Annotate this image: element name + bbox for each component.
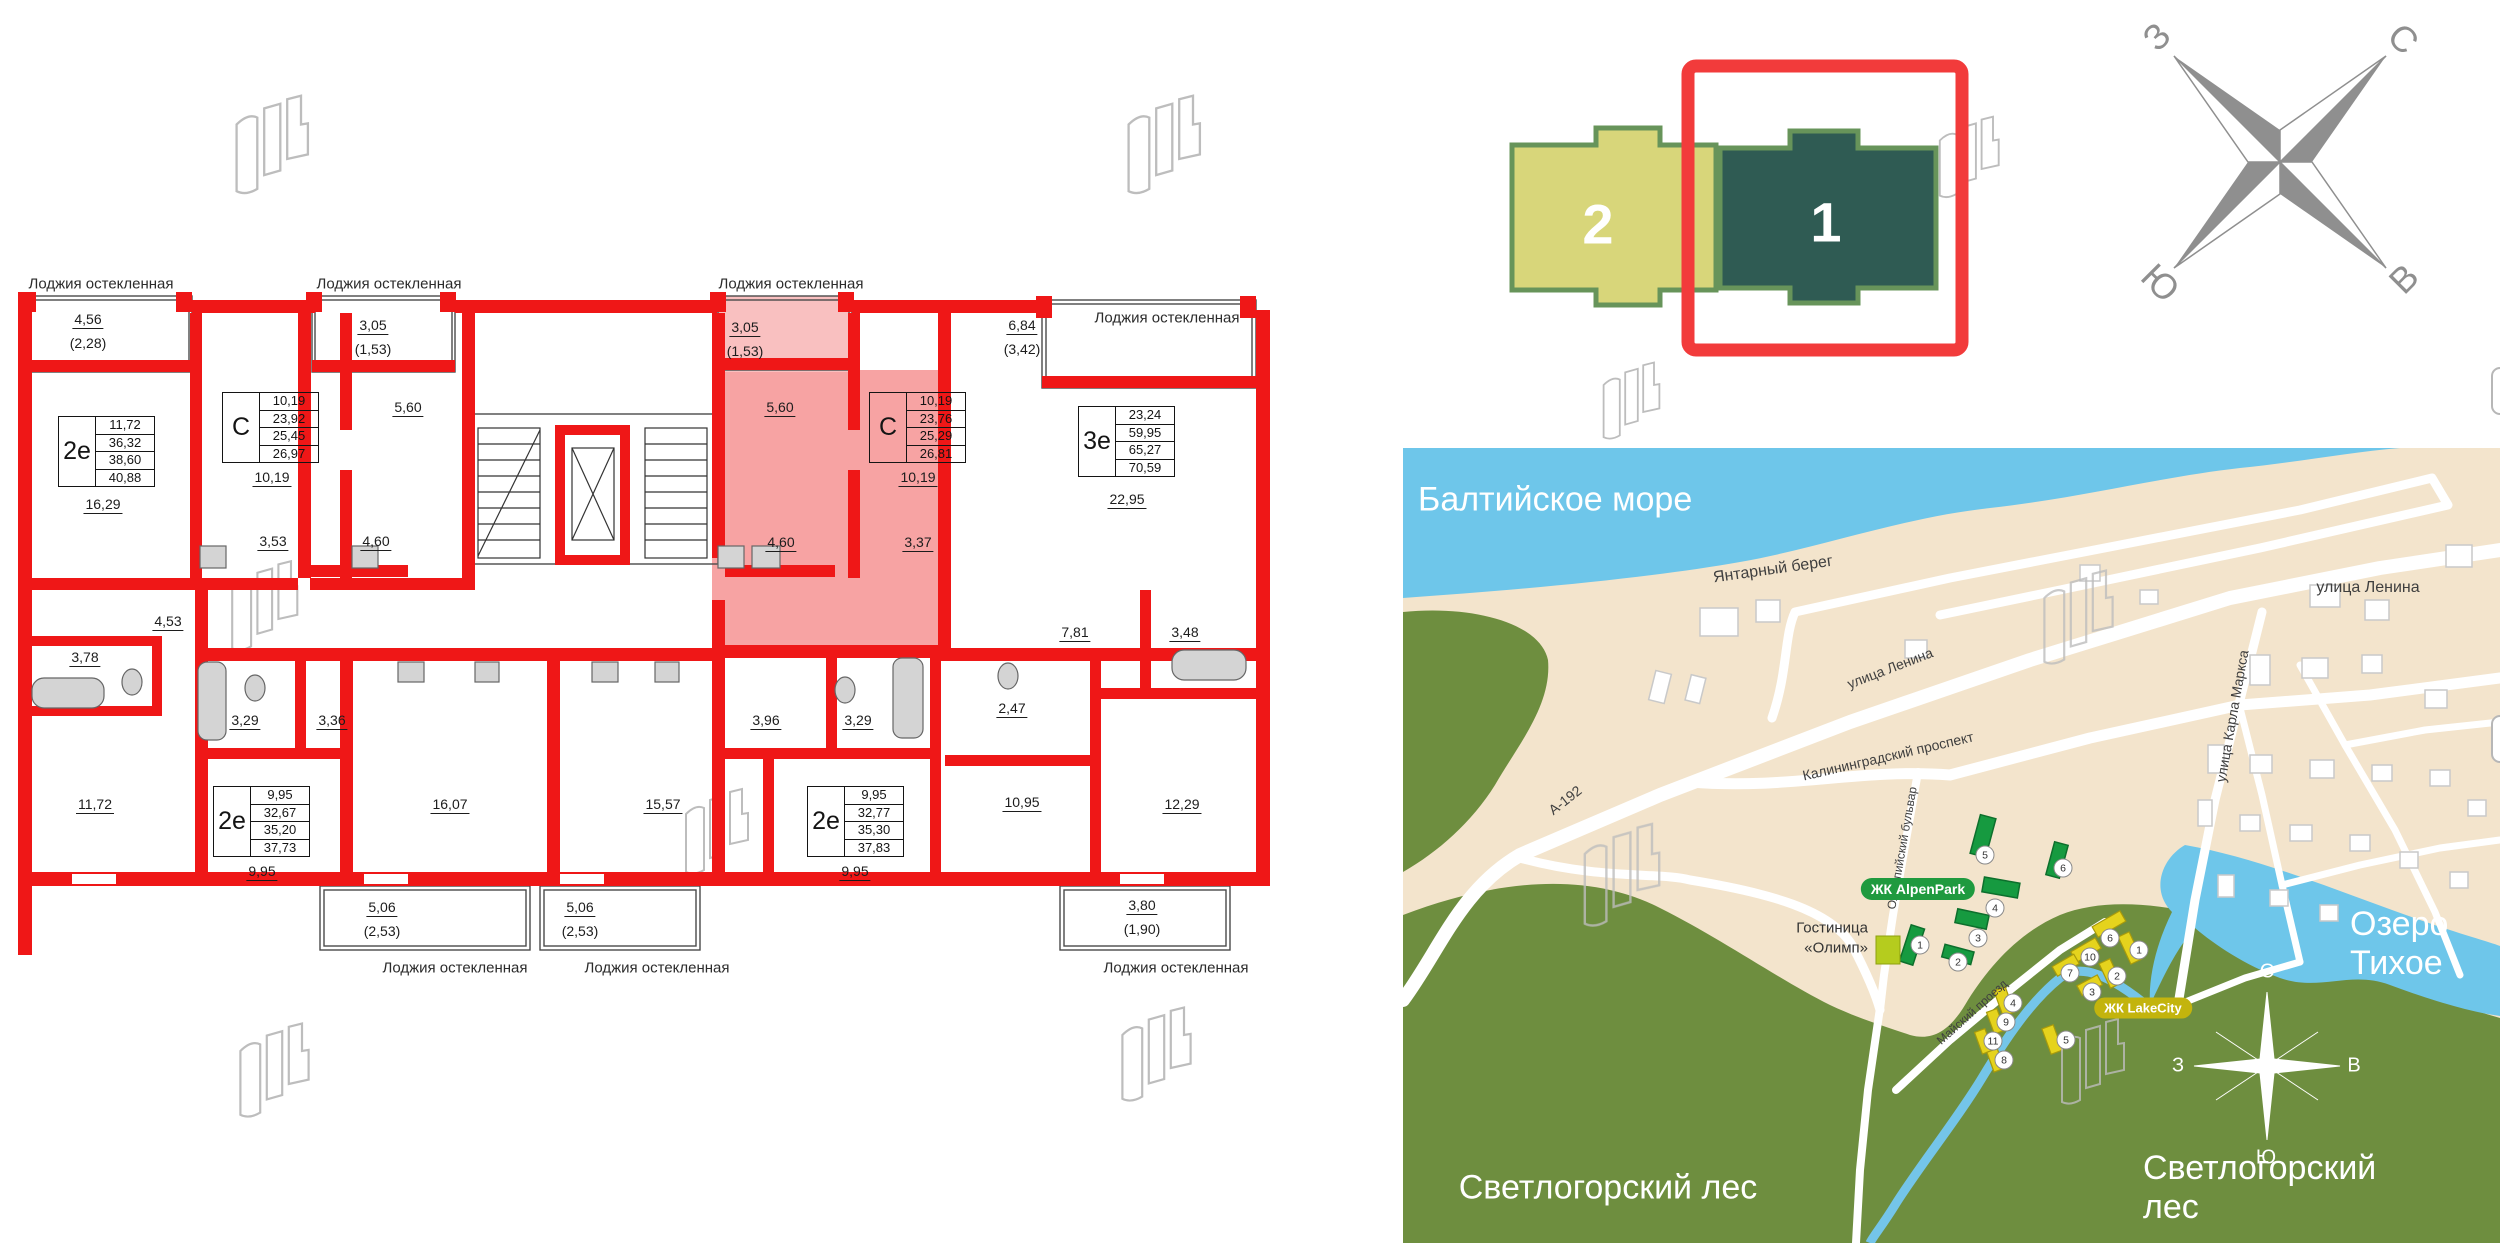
room-area: 5,60 xyxy=(764,399,795,417)
building-number-badge: 9 xyxy=(1997,1013,2016,1032)
room-area: 11,72 xyxy=(76,796,114,814)
loggia-label: Лоджия остекленная xyxy=(1094,310,1239,327)
alpenpark-badge[interactable]: ЖК AlpenPark xyxy=(1861,878,1975,900)
street-lenina-right: улица Ленина xyxy=(2316,579,2419,597)
room-area: 3,37 xyxy=(902,534,933,552)
room-area: 4,60 xyxy=(360,533,391,551)
apartment-type: 2е xyxy=(808,787,845,856)
room-area: 7,81 xyxy=(1059,624,1090,642)
hotel-label-line1: Гостиница xyxy=(1796,919,1868,938)
hotel-label-line2: «Олимп» xyxy=(1804,939,1868,958)
forest-label-left: Светлогорский лес xyxy=(1459,1169,1758,1208)
room-area: 3,29 xyxy=(229,712,260,730)
lakecity-badge[interactable]: ЖК LakeCity xyxy=(2094,998,2192,1019)
room-area: 5,06 xyxy=(564,899,595,917)
building-number-badge: 8 xyxy=(1995,1051,2014,1070)
room-area: 16,07 xyxy=(430,796,469,814)
room-area: 3,48 xyxy=(1169,624,1200,642)
apartment-type: С xyxy=(223,393,260,462)
room-area: 3,53 xyxy=(257,533,288,551)
room-area: 3,96 xyxy=(750,712,781,730)
section-selector xyxy=(1512,66,1962,350)
building-number-badge: 4 xyxy=(1986,899,2005,918)
room-area: 10,19 xyxy=(898,469,937,487)
room-area: 2,47 xyxy=(996,700,1027,718)
mini-compass-south: Ю xyxy=(2256,1147,2276,1170)
building-number-badge: 5 xyxy=(2057,1031,2076,1050)
room-area: 3,36 xyxy=(316,712,347,730)
location-map xyxy=(1403,448,2500,1243)
room-area: 3,78 xyxy=(69,649,100,667)
room-area: 9,95 xyxy=(839,863,870,881)
apartment-info-box[interactable]: 2е 9,95 32,77 35,30 37,83 xyxy=(807,786,904,857)
building-number-badge: 5 xyxy=(1976,846,1995,865)
room-area: 3,29 xyxy=(842,712,873,730)
edge-cut-card xyxy=(2492,716,2500,762)
lake-label: Озеро Тихое xyxy=(2350,905,2450,983)
building-number-badge: 7 xyxy=(2061,964,2080,983)
room-area: 4,56 xyxy=(72,311,103,329)
apartment-type: С xyxy=(870,393,907,462)
building-number-badge: 11 xyxy=(1984,1032,2003,1051)
mini-compass-west: З xyxy=(2172,1055,2184,1078)
loggia-label: Лоджия остекленная xyxy=(28,276,173,293)
loggia-label: Лоджия остекленная xyxy=(382,960,527,977)
edge-cut-card xyxy=(2492,368,2500,414)
stairwell xyxy=(478,428,707,558)
section-2-number[interactable]: 2 xyxy=(1582,192,1613,257)
room-area: (2,28) xyxy=(70,335,107,351)
building-number-badge: 2 xyxy=(1949,953,1968,972)
building-number-badge: 3 xyxy=(2083,983,2102,1002)
loggia-label: Лоджия остекленная xyxy=(584,960,729,977)
room-area: 6,84 xyxy=(1006,317,1037,335)
graphics-layer xyxy=(0,0,2500,1250)
building-number-badge: 3 xyxy=(1969,929,1988,948)
apartment-info-box[interactable]: С 10,19 23,92 25,45 26,97 xyxy=(222,392,319,463)
apartment-info-box[interactable]: 2е 9,95 32,67 35,20 37,73 xyxy=(213,786,310,857)
room-area: 9,95 xyxy=(246,863,277,881)
loggia-label: Лоджия остекленная xyxy=(1103,960,1248,977)
hotel-building xyxy=(1876,936,1900,964)
building-number-badge: 6 xyxy=(2101,929,2120,948)
room-area: (3,42) xyxy=(1004,341,1041,357)
page: Лоджия остекленная Лоджия остекленная Ло… xyxy=(0,0,2500,1250)
building-number-badge: 2 xyxy=(2108,967,2127,986)
room-area: 4,60 xyxy=(765,534,796,552)
building-number-badge: 10 xyxy=(2081,948,2100,967)
bath-fixtures xyxy=(32,546,1246,740)
mini-compass-north: С xyxy=(2260,961,2274,984)
loggia-label: Лоджия остекленная xyxy=(316,276,461,293)
apartment-info-box[interactable]: 2е 11,72 36,32 38,60 40,88 xyxy=(58,416,155,487)
room-area: (1,53) xyxy=(355,341,392,357)
room-area: 16,29 xyxy=(83,496,122,514)
room-area: (1,90) xyxy=(1124,921,1161,937)
apartment-info-box[interactable]: 3е 23,24 59,95 65,27 70,59 xyxy=(1078,406,1175,477)
compass-rose-icon xyxy=(2174,56,2386,268)
room-area: (2,53) xyxy=(364,923,401,939)
room-area: 3,05 xyxy=(729,319,760,337)
room-area: (1,53) xyxy=(727,343,764,359)
apartment-type: 2е xyxy=(214,787,251,856)
room-area: 22,95 xyxy=(1107,491,1146,509)
sea-label: Балтийское море xyxy=(1418,481,1692,520)
room-area: 10,19 xyxy=(252,469,291,487)
apartment-type: 2е xyxy=(59,417,96,486)
building-number-badge: 4 xyxy=(2004,994,2023,1013)
apartment-type: 3е xyxy=(1079,407,1116,476)
building-number-badge: 6 xyxy=(2054,859,2073,878)
room-area: 15,57 xyxy=(643,796,682,814)
room-area: 4,53 xyxy=(152,613,183,631)
room-area: 12,29 xyxy=(1162,796,1201,814)
apartment-info-box-selected[interactable]: С 10,19 23,76 25,29 26,81 xyxy=(869,392,966,463)
building-number-badge: 1 xyxy=(1911,936,1930,955)
loggia-label: Лоджия остекленная xyxy=(718,276,863,293)
room-area: 3,80 xyxy=(1126,897,1157,915)
mini-compass-east: В xyxy=(2347,1055,2360,1078)
room-area: 3,05 xyxy=(357,317,388,335)
building-number-badge: 1 xyxy=(2130,941,2149,960)
section-1-number[interactable]: 1 xyxy=(1810,190,1841,255)
room-area: 10,95 xyxy=(1002,794,1041,812)
room-area: (2,53) xyxy=(562,923,599,939)
room-area: 5,60 xyxy=(392,399,423,417)
room-area: 5,06 xyxy=(366,899,397,917)
